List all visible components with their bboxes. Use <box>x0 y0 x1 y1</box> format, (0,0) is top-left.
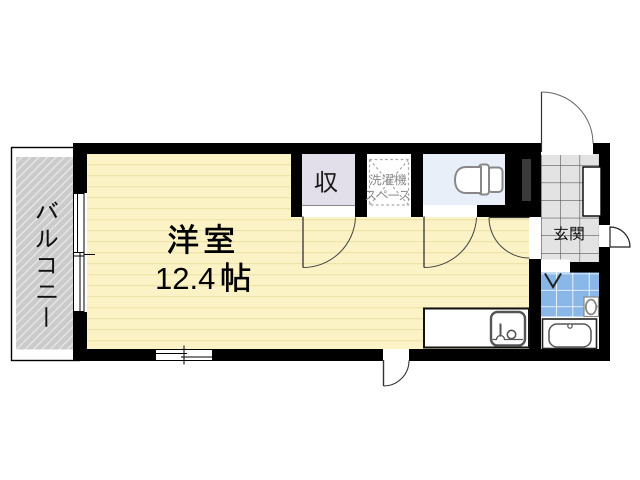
svg-text:12.4: 12.4 <box>155 261 215 296</box>
